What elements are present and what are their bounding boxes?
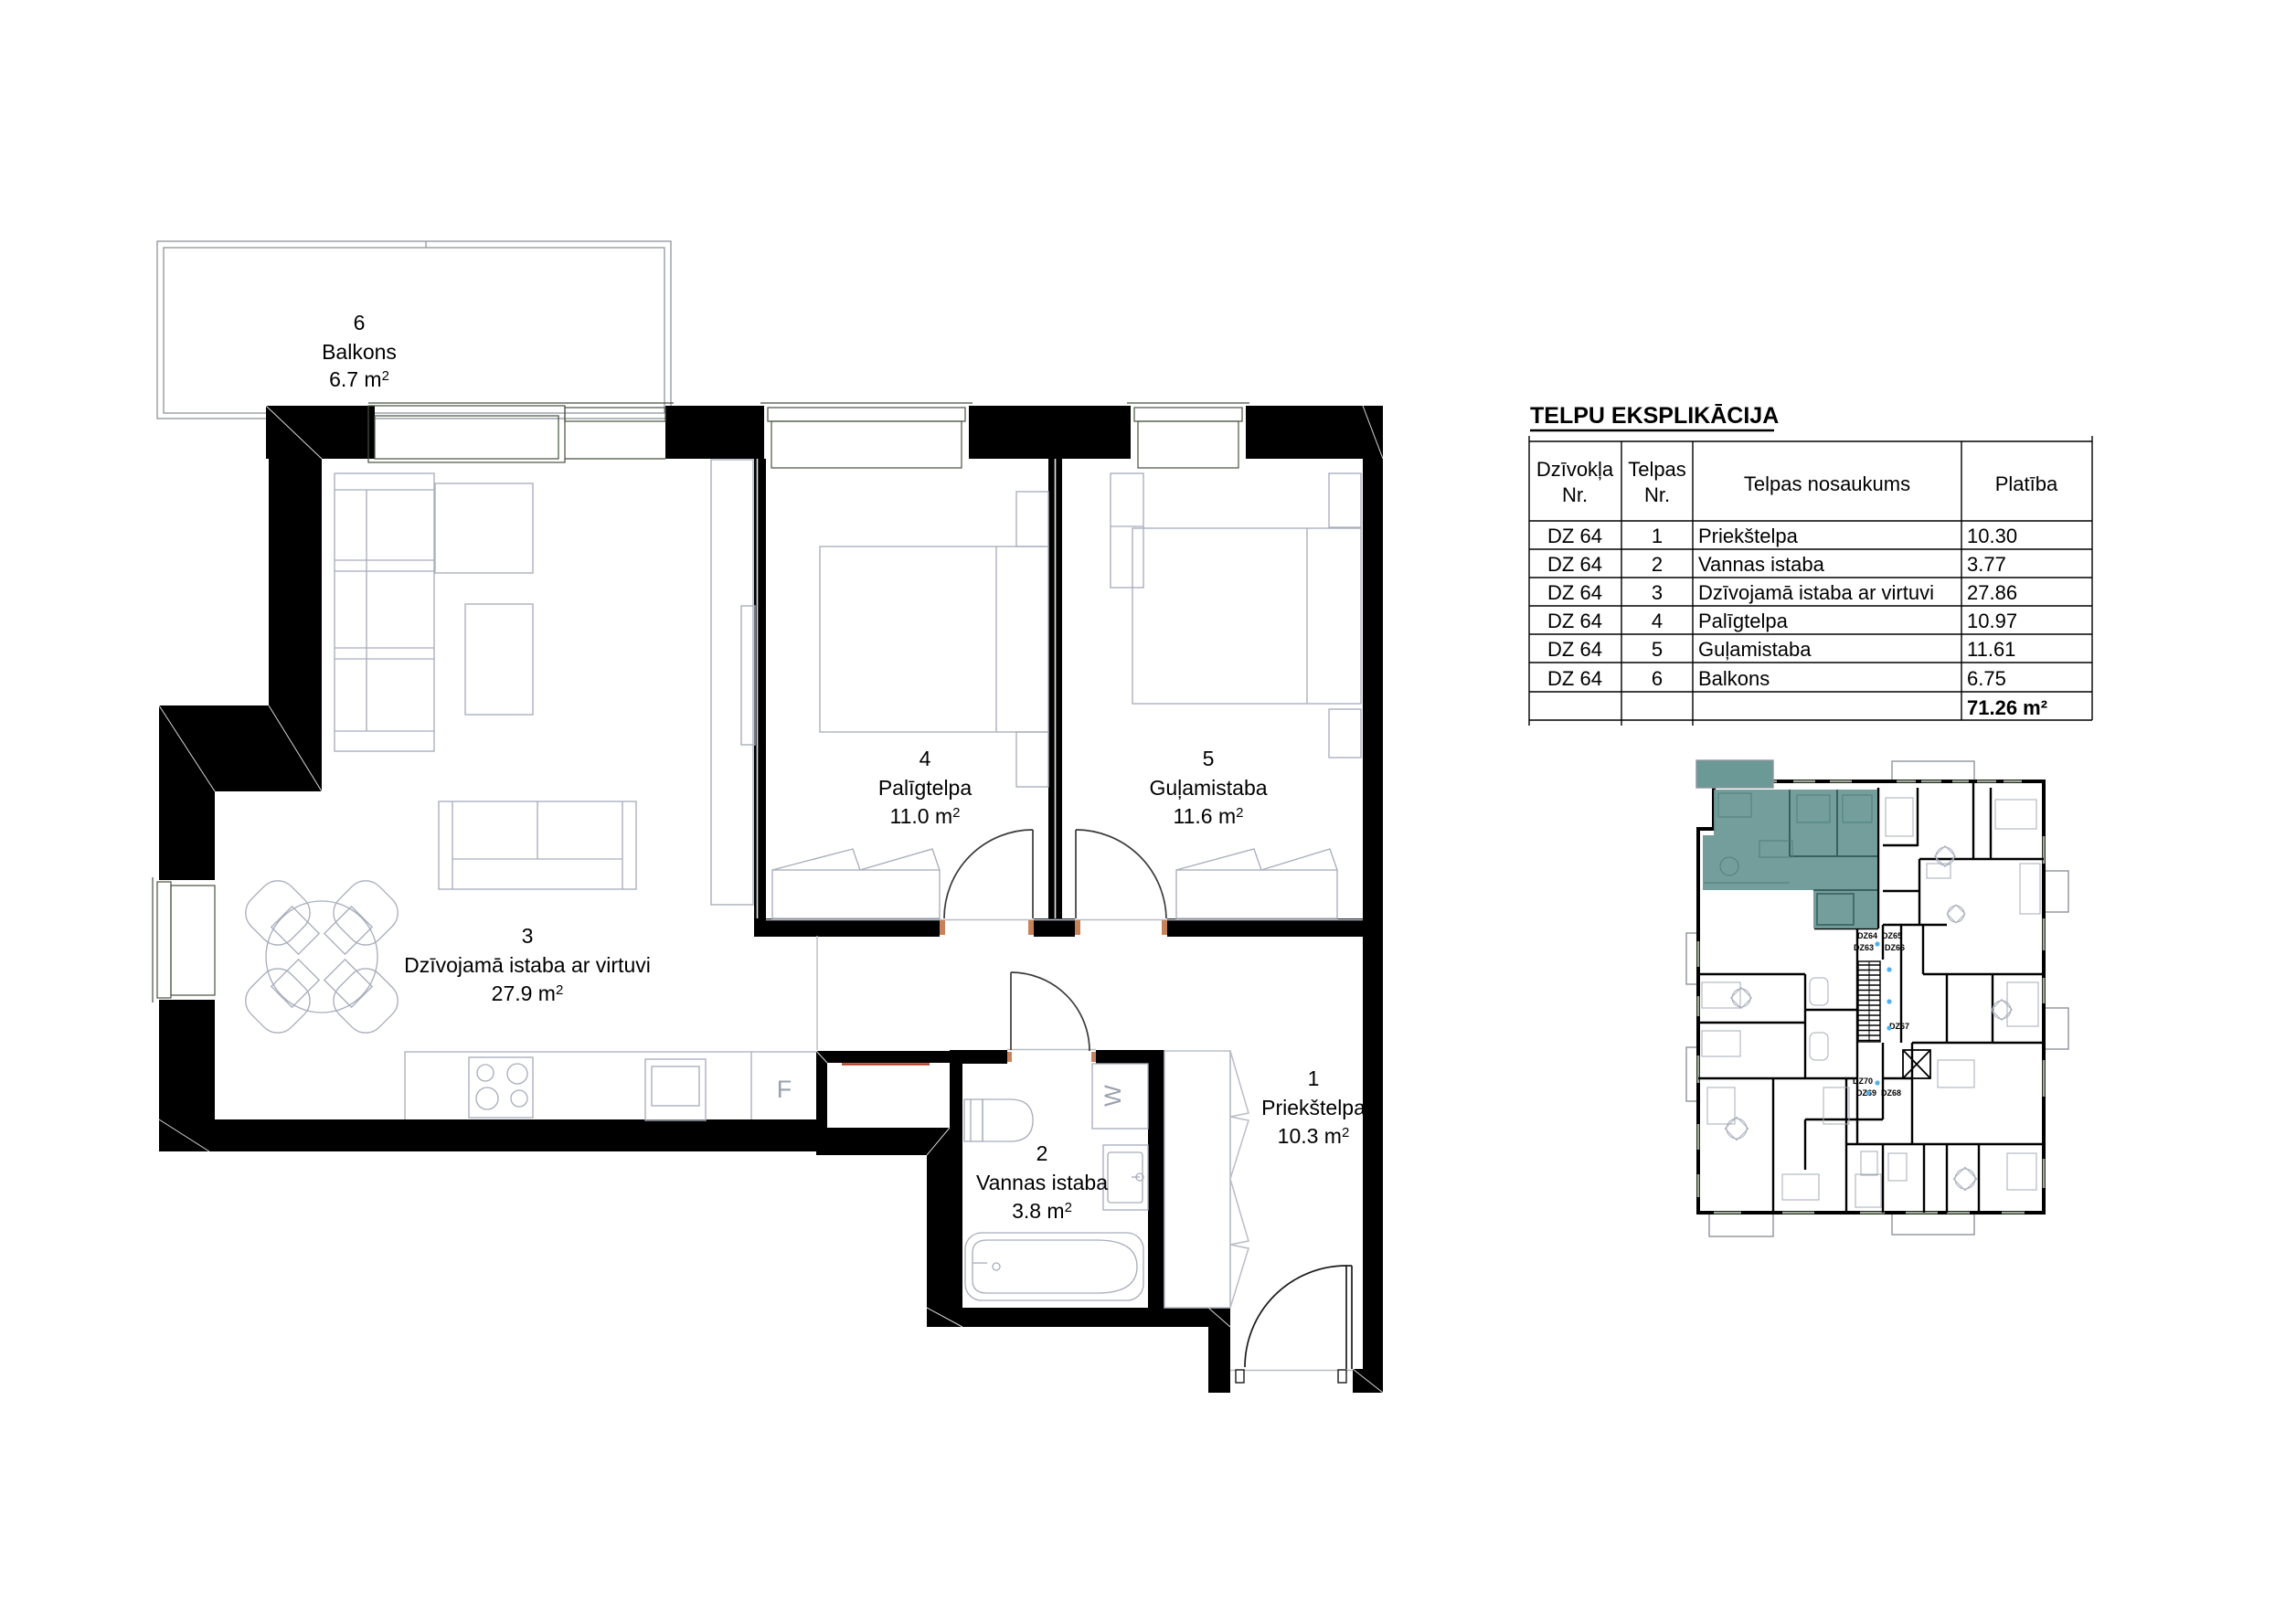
svg-text:DZ66: DZ66 <box>1885 943 1905 952</box>
svg-text:Vannas istaba: Vannas istaba <box>976 1171 1108 1194</box>
svg-text:11.6 m2: 11.6 m2 <box>1174 804 1244 828</box>
svg-text:Palīgtelpa: Palīgtelpa <box>1698 610 1789 632</box>
svg-text:Telpas nosaukums: Telpas nosaukums <box>1744 472 1910 495</box>
svg-text:DZ 64: DZ 64 <box>1547 610 1602 632</box>
svg-text:Balkons: Balkons <box>1698 667 1770 690</box>
svg-text:Palīgtelpa: Palīgtelpa <box>878 776 973 800</box>
svg-text:Guļamistaba: Guļamistaba <box>1149 776 1267 800</box>
svg-text:5: 5 <box>1652 638 1663 661</box>
svg-text:10.3 m2: 10.3 m2 <box>1278 1124 1350 1148</box>
svg-text:3.77: 3.77 <box>1967 553 2006 576</box>
svg-text:10.97: 10.97 <box>1967 610 2017 632</box>
svg-text:4: 4 <box>919 747 931 770</box>
svg-text:Dzīvojamā istaba ar virtuvi: Dzīvojamā istaba ar virtuvi <box>1698 581 1934 604</box>
svg-text:3: 3 <box>522 924 534 948</box>
svg-text:11.0 m2: 11.0 m2 <box>890 804 961 828</box>
svg-text:DZ 64: DZ 64 <box>1547 525 1602 547</box>
svg-text:2: 2 <box>1652 553 1663 576</box>
svg-text:TELPU EKSPLIKĀCIJA: TELPU EKSPLIKĀCIJA <box>1530 403 1779 429</box>
svg-text:DZ65: DZ65 <box>1882 931 1902 940</box>
svg-text:4: 4 <box>1652 610 1663 632</box>
svg-text:6: 6 <box>1652 667 1663 690</box>
svg-text:Balkons: Balkons <box>322 340 397 364</box>
svg-text:Priekštelpa: Priekštelpa <box>1261 1096 1366 1119</box>
svg-text:Telpas: Telpas <box>1628 458 1686 481</box>
svg-text:DZ 64: DZ 64 <box>1547 553 1602 576</box>
svg-text:Nr.: Nr. <box>1644 483 1670 506</box>
svg-text:F: F <box>777 1076 792 1103</box>
svg-text:DZ68: DZ68 <box>1881 1088 1901 1098</box>
svg-text:DZ 64: DZ 64 <box>1547 581 1602 604</box>
svg-text:5: 5 <box>1203 747 1215 770</box>
svg-text:Priekštelpa: Priekštelpa <box>1698 525 1799 547</box>
svg-text:Vannas istaba: Vannas istaba <box>1698 553 1825 576</box>
svg-text:W: W <box>1100 1085 1126 1107</box>
svg-text:1: 1 <box>1308 1066 1320 1090</box>
svg-text:DZ 64: DZ 64 <box>1547 667 1602 690</box>
svg-text:3: 3 <box>1652 581 1663 604</box>
svg-text:11.61: 11.61 <box>1967 638 2015 661</box>
svg-text:Dzīvokļa: Dzīvokļa <box>1536 458 1614 481</box>
svg-text:6: 6 <box>354 311 366 334</box>
svg-text:3.8 m2: 3.8 m2 <box>1012 1199 1072 1223</box>
svg-text:2: 2 <box>1036 1141 1048 1165</box>
svg-text:DZ70: DZ70 <box>1853 1077 1873 1086</box>
svg-text:Dzīvojamā istaba ar virtuvi: Dzīvojamā istaba ar virtuvi <box>404 953 651 977</box>
svg-text:DZ64: DZ64 <box>1857 931 1877 940</box>
svg-text:DZ63: DZ63 <box>1854 943 1874 952</box>
svg-text:Nr.: Nr. <box>1562 483 1588 506</box>
svg-text:1: 1 <box>1652 525 1663 547</box>
svg-text:DZ 64: DZ 64 <box>1547 638 1602 661</box>
svg-text:10.30: 10.30 <box>1967 525 2017 547</box>
svg-text:27.9 m2: 27.9 m2 <box>492 981 564 1005</box>
svg-text:27.86: 27.86 <box>1967 581 2017 604</box>
svg-text:Platība: Platība <box>1995 472 2058 495</box>
svg-text:71.26 m²: 71.26 m² <box>1967 696 2047 719</box>
svg-text:6.75: 6.75 <box>1967 667 2006 690</box>
svg-text:6.7 m2: 6.7 m2 <box>329 367 389 391</box>
svg-text:Guļamistaba: Guļamistaba <box>1698 638 1812 661</box>
svg-text:DZ67: DZ67 <box>1889 1022 1909 1031</box>
